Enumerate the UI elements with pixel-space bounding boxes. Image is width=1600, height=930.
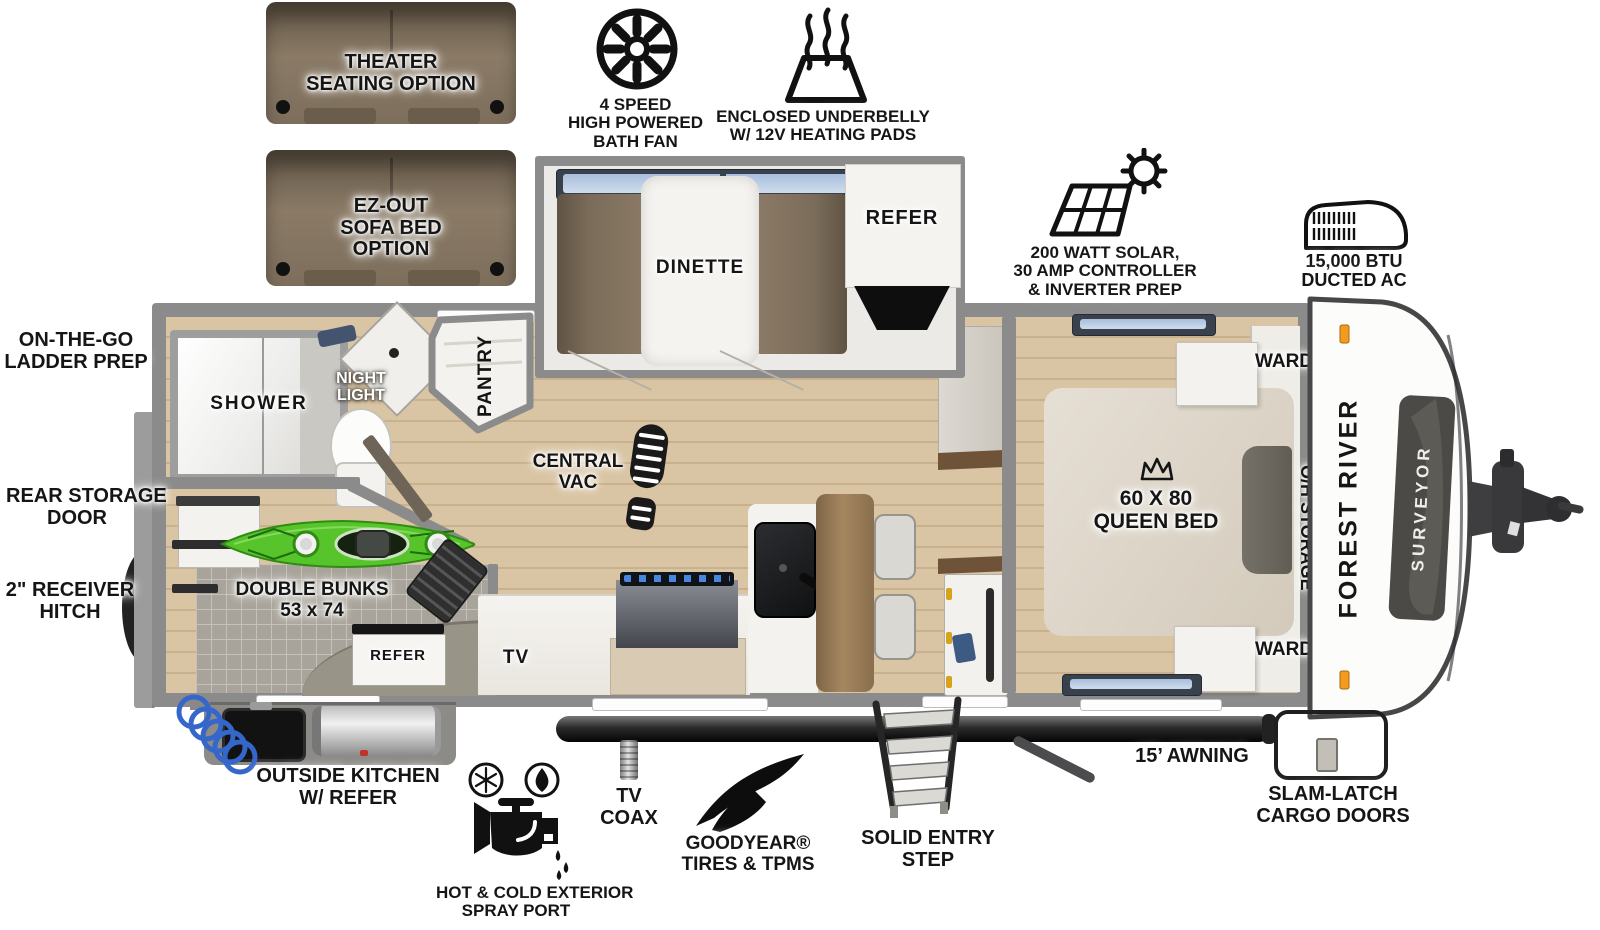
svg-text:FOREST RIVER: FOREST RIVER xyxy=(1335,398,1363,619)
coax-threads xyxy=(620,740,638,780)
solar-prep-icon xyxy=(1042,148,1174,246)
cargo-door-latch xyxy=(1316,738,1338,772)
sofa-foot xyxy=(276,100,290,114)
double-bunks-label: DOUBLE BUNKS53 x 74 xyxy=(230,580,394,621)
bathroom-bottom-wall xyxy=(162,477,360,489)
sofa-skirt xyxy=(304,270,376,286)
sink-faucet-dot xyxy=(389,348,399,358)
outside-refer-topbar xyxy=(352,624,444,634)
goodyear-label: GOODYEAR®TIRES & TPMS xyxy=(666,834,830,875)
kitchen-island xyxy=(816,494,874,692)
heated-underbelly-icon xyxy=(772,6,880,106)
sofa-cushion-divider xyxy=(390,10,393,52)
sofa-skirt xyxy=(304,108,376,124)
shower-label: SHOWER xyxy=(196,394,322,415)
marker-light-bottom xyxy=(1340,671,1349,689)
stove-flames xyxy=(624,575,730,582)
tongue-hitch xyxy=(1468,449,1584,553)
bath-fan-label: 4 SPEEDHIGH POWEREDBATH FAN xyxy=(548,96,723,151)
crown-icon xyxy=(1138,456,1176,484)
door-hinge-3 xyxy=(946,676,952,688)
sofa-foot xyxy=(490,262,504,276)
stove-body xyxy=(616,580,738,648)
sofa-foot xyxy=(276,262,290,276)
spray-port-label: HOT & COLD EXTERIORSPRAY PORT xyxy=(436,884,596,921)
bedroom-wall xyxy=(1002,317,1016,693)
spray-port-icon xyxy=(460,760,572,882)
bedroom-window-bottom-glass xyxy=(1070,679,1192,689)
water-heater xyxy=(312,706,441,756)
ducted-ac-label: 15,000 BTUDUCTED AC xyxy=(1286,252,1422,291)
water-heater-indicator xyxy=(360,750,368,756)
pantry-cabinet: PANTRY xyxy=(424,312,536,436)
rear-storage-label: REAR STORAGEDOOR xyxy=(6,486,148,529)
bed-pillows xyxy=(1242,446,1292,574)
sofa-skirt xyxy=(408,270,480,286)
stool-1 xyxy=(874,514,916,580)
marker-light-top xyxy=(1340,325,1349,343)
cargo-doors-label: SLAM-LATCHCARGO DOORS xyxy=(1248,784,1418,827)
central-vac-label: CENTRALVAC xyxy=(522,452,634,493)
night-light-label: NIGHTLIGHT xyxy=(320,370,402,405)
theater-seating-label: THEATERSEATING OPTION xyxy=(276,52,506,95)
sofa-cushion-divider xyxy=(390,158,393,200)
awning-label: 15’ AWNING xyxy=(1126,746,1258,768)
rv-floorplan-diagram: SHOWER NIGHTLIGHT PANTRY REFER DOUBLE BU… xyxy=(0,0,1600,930)
bunk-bracket-2 xyxy=(172,584,218,593)
stool-2 xyxy=(874,594,916,660)
entry-door-handle-strip xyxy=(986,588,994,682)
ladder-prep-label: ON-THE-GOLADDER PREP xyxy=(0,330,152,373)
sofa-foot xyxy=(490,100,504,114)
queen-bed-label: 60 X 80QUEEN BED xyxy=(1076,488,1236,533)
underbelly-label: ENCLOSED UNDERBELLYW/ 12V HEATING PADS xyxy=(716,108,930,145)
bunk-cabinet-trim xyxy=(176,496,260,506)
solar-prep-label: 200 WATT SOLAR,30 AMP CONTROLLER& INVERT… xyxy=(1000,244,1210,299)
door-hinge-2 xyxy=(946,632,952,644)
sink-drain xyxy=(779,564,787,572)
door-hinge-1 xyxy=(946,588,952,600)
bedroom-wall-window-strip xyxy=(1080,699,1222,711)
receiver-hitch-label: 2" RECEIVERHITCH xyxy=(0,580,140,623)
tv-coax-label: TVCOAX xyxy=(584,786,674,829)
goodyear-wingfoot-icon xyxy=(686,746,810,836)
sofa-skirt xyxy=(408,108,480,124)
bedroom-window-top-glass xyxy=(1080,319,1206,329)
kitchen-wall-window xyxy=(592,698,768,711)
dinette-bench-right xyxy=(755,194,847,354)
awning-leg xyxy=(1012,735,1097,785)
tv-label: TV xyxy=(488,648,544,669)
bath-fan-icon xyxy=(592,4,682,94)
cabinet-wedge-2 xyxy=(938,556,1004,574)
ducted-ac-icon xyxy=(1294,190,1412,258)
sofa-bed-label: EZ-OUTSOFA BEDOPTION xyxy=(286,196,496,261)
outside-kitchen-label: OUTSIDE KITCHENW/ REFER xyxy=(250,766,446,809)
nightstand-top xyxy=(1176,342,1258,406)
entry-step-label: SOLID ENTRYSTEP xyxy=(848,828,1008,871)
dinette-label: DINETTE xyxy=(646,258,754,279)
entry-steps xyxy=(860,696,972,818)
svg-text:PANTRY: PANTRY xyxy=(475,335,496,417)
dinette-bench-left xyxy=(557,194,649,354)
front-cap: SURVEYOR FOREST RIVER xyxy=(1296,291,1586,725)
cabinet-wedge-1 xyxy=(938,450,1004,470)
refer-label: REFER xyxy=(845,208,959,230)
outside-refer-label: REFER xyxy=(352,648,444,664)
